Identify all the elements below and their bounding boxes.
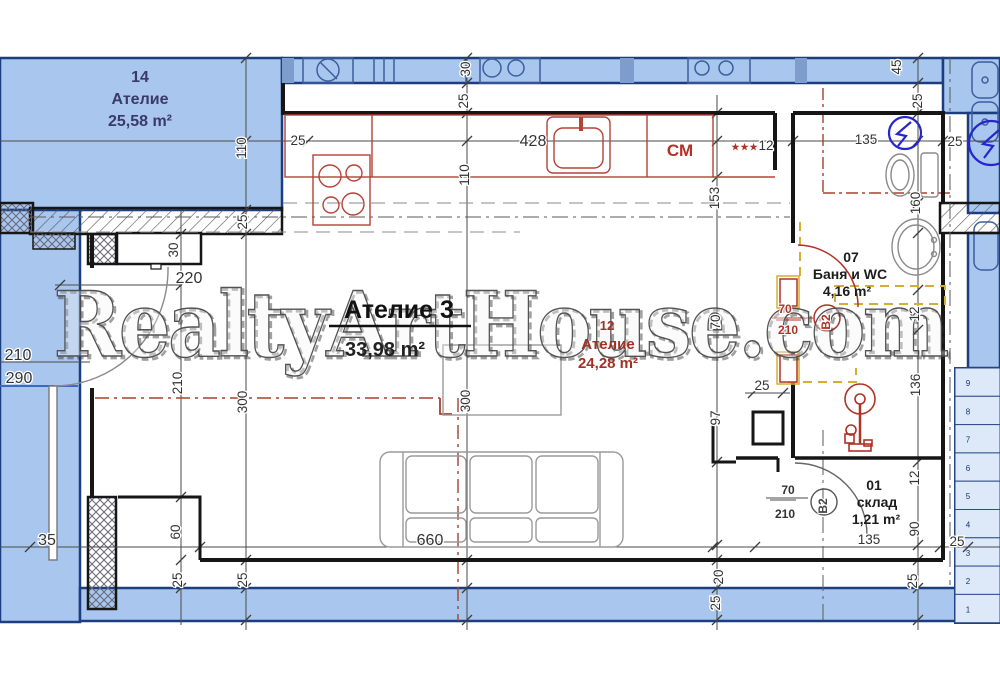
dimension-label: 290 bbox=[6, 370, 33, 387]
stair-step-number: 5 bbox=[966, 492, 971, 501]
dimension-label: 30 bbox=[458, 61, 473, 76]
dimension-label: 25 bbox=[949, 534, 964, 549]
dimension-label: 25 bbox=[947, 134, 962, 149]
stair-step-number: 9 bbox=[966, 379, 971, 388]
dimension-label: 25 bbox=[170, 572, 185, 587]
dimension-label: 25 bbox=[290, 133, 305, 148]
wall-pillar bbox=[795, 58, 807, 83]
dimension-label: 25 bbox=[235, 214, 250, 229]
dimension-label: 660 bbox=[417, 532, 444, 549]
dimension-label: 45 bbox=[889, 59, 904, 74]
dimension-label: 25 bbox=[910, 93, 925, 108]
bath-door-width: 70 bbox=[778, 302, 792, 316]
stair-step bbox=[955, 566, 1000, 594]
unit14-area: 25,58 m² bbox=[108, 113, 172, 130]
storage-door-width: 70 bbox=[781, 483, 795, 497]
top-neighbor-strip bbox=[282, 58, 943, 83]
electric-panel-icon bbox=[889, 117, 921, 149]
dimension-label: 97 bbox=[708, 410, 723, 425]
dimension-label: 153 bbox=[707, 187, 722, 210]
dimension-label: 70 bbox=[708, 314, 723, 329]
dimension-label: 110 bbox=[234, 137, 249, 159]
washbasin-icon bbox=[892, 219, 940, 275]
dimension-label: 35 bbox=[38, 532, 56, 549]
wall-hatched bbox=[33, 233, 75, 249]
bath-door-code: B2 bbox=[819, 314, 833, 330]
watermark-text: RealtyArtHouse.com bbox=[54, 272, 949, 378]
washing-machine-label: СМ bbox=[667, 141, 693, 160]
main-room-area: 33,98 m² bbox=[345, 339, 425, 361]
bottom-strip bbox=[80, 588, 1000, 621]
bathroom-number: 07 bbox=[843, 249, 859, 265]
stair-step bbox=[955, 396, 1000, 424]
wall-pillar bbox=[620, 58, 634, 83]
dimension-label: 136 bbox=[908, 374, 923, 397]
bath-door-height: 210 bbox=[778, 323, 798, 337]
dimension-label: 160 bbox=[908, 192, 923, 215]
kitchen-counter bbox=[285, 115, 713, 177]
watermark: RealtyArtHouse.com RealtyArtHouse.com bbox=[54, 272, 951, 380]
wall-column bbox=[117, 233, 201, 264]
dimension-label: 428 bbox=[520, 133, 547, 150]
dimension-label: 25 bbox=[905, 573, 920, 588]
shaft bbox=[753, 412, 783, 444]
bathroom-name: Баня и WC bbox=[813, 266, 887, 282]
dimension-label: 220 bbox=[176, 270, 203, 287]
dimension-label: 60 bbox=[168, 524, 183, 539]
stair-step-number: 4 bbox=[966, 521, 971, 530]
stair-step-number: 2 bbox=[966, 577, 971, 586]
wall-pillar bbox=[282, 58, 294, 83]
neighbor-fixtures bbox=[282, 58, 998, 270]
dimension-label: 25 bbox=[456, 93, 471, 108]
wall-hatched bbox=[940, 203, 1000, 233]
dimension-label: 90 bbox=[907, 521, 922, 536]
unit12-area: 24,28 m² bbox=[578, 355, 638, 372]
kitchen-equipment bbox=[285, 115, 775, 225]
storage-door-code: B2 bbox=[816, 498, 830, 514]
storage-number: 01 bbox=[866, 477, 882, 493]
stair-step-number: 7 bbox=[966, 436, 971, 445]
stair-step-number: 3 bbox=[966, 549, 971, 558]
dimension-label: 135 bbox=[855, 132, 878, 147]
stove-icon bbox=[313, 155, 370, 225]
unit12-number: 12 bbox=[600, 318, 614, 333]
dimension-label: 12 bbox=[758, 138, 773, 153]
stair-step-number: 6 bbox=[966, 464, 971, 473]
dimension-label: 300 bbox=[235, 391, 250, 414]
wall-hatched bbox=[88, 497, 116, 609]
dimension-label: 25 bbox=[235, 572, 250, 587]
stair-step bbox=[955, 594, 1000, 622]
storage-door-height: 210 bbox=[775, 507, 795, 521]
dimension-label: 12 bbox=[907, 306, 922, 321]
dimension-label: 210 bbox=[170, 372, 185, 395]
stair-step bbox=[955, 425, 1000, 453]
stair-step-number: 8 bbox=[966, 407, 971, 416]
dimension-label: 135 bbox=[858, 532, 881, 547]
dimension-label: 210 bbox=[5, 347, 32, 364]
dimension-label: 30 bbox=[166, 242, 181, 257]
shower-icon bbox=[845, 384, 875, 451]
dimension-label: 12 bbox=[907, 470, 922, 485]
dimension-label: 110 bbox=[457, 164, 472, 186]
dimension-label: 25 bbox=[708, 595, 723, 610]
bathroom-area: 4,16 m² bbox=[823, 283, 872, 299]
floor-plan-page: 987654321 bbox=[0, 0, 1000, 679]
dimension-label: 20 bbox=[711, 569, 726, 584]
dimension-label: 25 bbox=[754, 378, 769, 393]
storage-area: 1,21 m² bbox=[852, 511, 901, 527]
toilet-tank bbox=[921, 153, 938, 197]
stair-step-number: 1 bbox=[966, 605, 971, 614]
wall-hatched bbox=[0, 203, 33, 233]
staircase: 987654321 bbox=[955, 368, 1000, 623]
unit14-number: 14 bbox=[131, 69, 149, 86]
floor-plan-drawing: 987654321 bbox=[0, 0, 1000, 679]
wall-detail bbox=[151, 264, 161, 269]
storage-name: склад bbox=[857, 494, 898, 510]
stair-step bbox=[955, 453, 1000, 481]
stair-step bbox=[955, 368, 1000, 396]
unit14-name: Ателие bbox=[112, 91, 169, 108]
right-column-lower bbox=[968, 233, 1000, 368]
dimension-label: 300 bbox=[458, 390, 473, 413]
unit12-name: Ателие bbox=[581, 336, 634, 353]
stars-marker: ★★★ bbox=[731, 142, 758, 152]
main-room-title: Ателие 3 bbox=[344, 296, 454, 324]
stair-step bbox=[955, 481, 1000, 509]
